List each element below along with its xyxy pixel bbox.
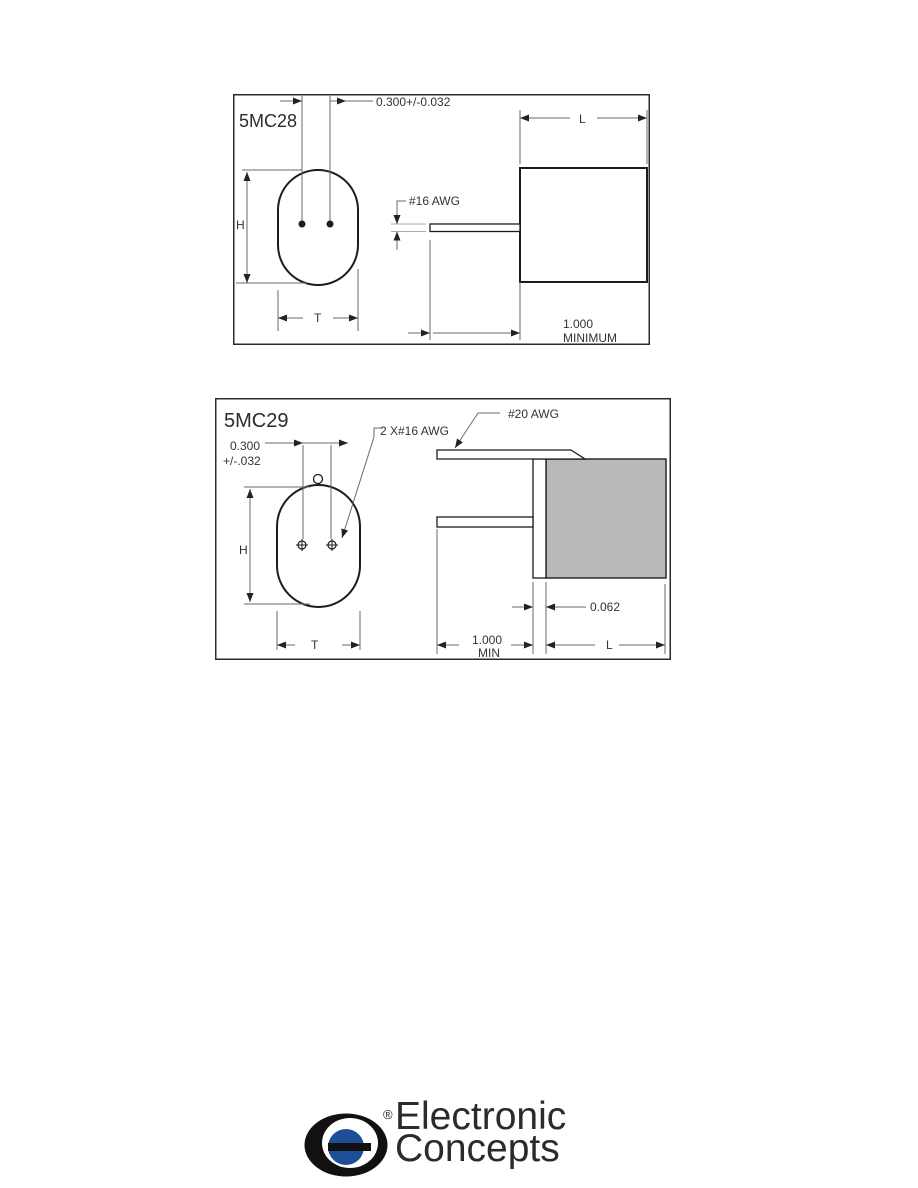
lead-wire [430, 224, 520, 232]
length-label: L [606, 638, 613, 652]
front-view [277, 445, 360, 607]
lead-length-qualifier: MINIMUM [563, 331, 617, 345]
thickness-label: T [314, 311, 322, 325]
wire-gauge-callout: #16 AWG [391, 194, 460, 250]
lead-length-dimension: 1.000 MIN [437, 529, 533, 660]
thickness-dimension: T [277, 611, 360, 652]
diagram-5mc29: 5MC29 0.300 +/-.032 2 X#16 AWG [215, 398, 671, 660]
terminal-left [299, 221, 306, 228]
tab-lead-top [437, 450, 585, 459]
model-label: 5MC29 [224, 410, 288, 432]
tab-gauge-callout: #20 AWG [455, 407, 559, 448]
lead-length-qualifier: MIN [478, 646, 500, 660]
capacitor-body-side [520, 168, 647, 282]
lead-spacing-dimension: 0.300+/-0.032 [280, 95, 451, 109]
lead-wire-bottom [437, 517, 533, 527]
lead-spacing-dimension: 0.300 +/-.032 [223, 439, 348, 468]
capacitor-body-side [546, 459, 666, 578]
side-view [437, 450, 666, 578]
height-label: H [236, 218, 245, 232]
terminal-right [327, 221, 334, 228]
length-label: L [579, 112, 586, 126]
leads-gauge-value: 2 X#16 AWG [380, 424, 449, 438]
lead-spacing-value: 0.300 [230, 439, 260, 453]
company-logo: ® Electronic Concepts [304, 1110, 634, 1188]
tab-gauge-value: #20 AWG [508, 407, 559, 421]
lead-length-value: 1.000 [472, 633, 502, 647]
registered-trademark: ® [383, 1107, 393, 1122]
model-label: 5MC28 [239, 111, 297, 131]
end-margin-value: 0.062 [590, 600, 620, 614]
diagram-5mc28: 5MC28 0.300+/-0.032 H T L [233, 94, 650, 345]
eci-logo-mark [304, 1113, 388, 1177]
wire-gauge-value: #16 AWG [409, 194, 460, 208]
vent-hole [314, 475, 323, 484]
company-name-line2: Concepts [395, 1133, 566, 1165]
thickness-label: T [311, 638, 319, 652]
lead-spacing-value: 0.300+/-0.032 [376, 95, 451, 109]
capacitor-oval-outline [277, 485, 360, 607]
company-name: Electronic Concepts [395, 1101, 566, 1165]
logo-crossbar [328, 1143, 371, 1151]
lead-length-value: 1.000 [563, 317, 593, 331]
capacitor-oval-outline [278, 170, 358, 285]
length-dimension: L [546, 584, 665, 654]
height-label: H [239, 543, 248, 557]
length-dimension: L [520, 110, 647, 164]
end-margin-strip [533, 459, 546, 578]
end-margin-dimension: 0.062 [512, 582, 620, 654]
lead-spacing-tolerance: +/-.032 [223, 454, 261, 468]
